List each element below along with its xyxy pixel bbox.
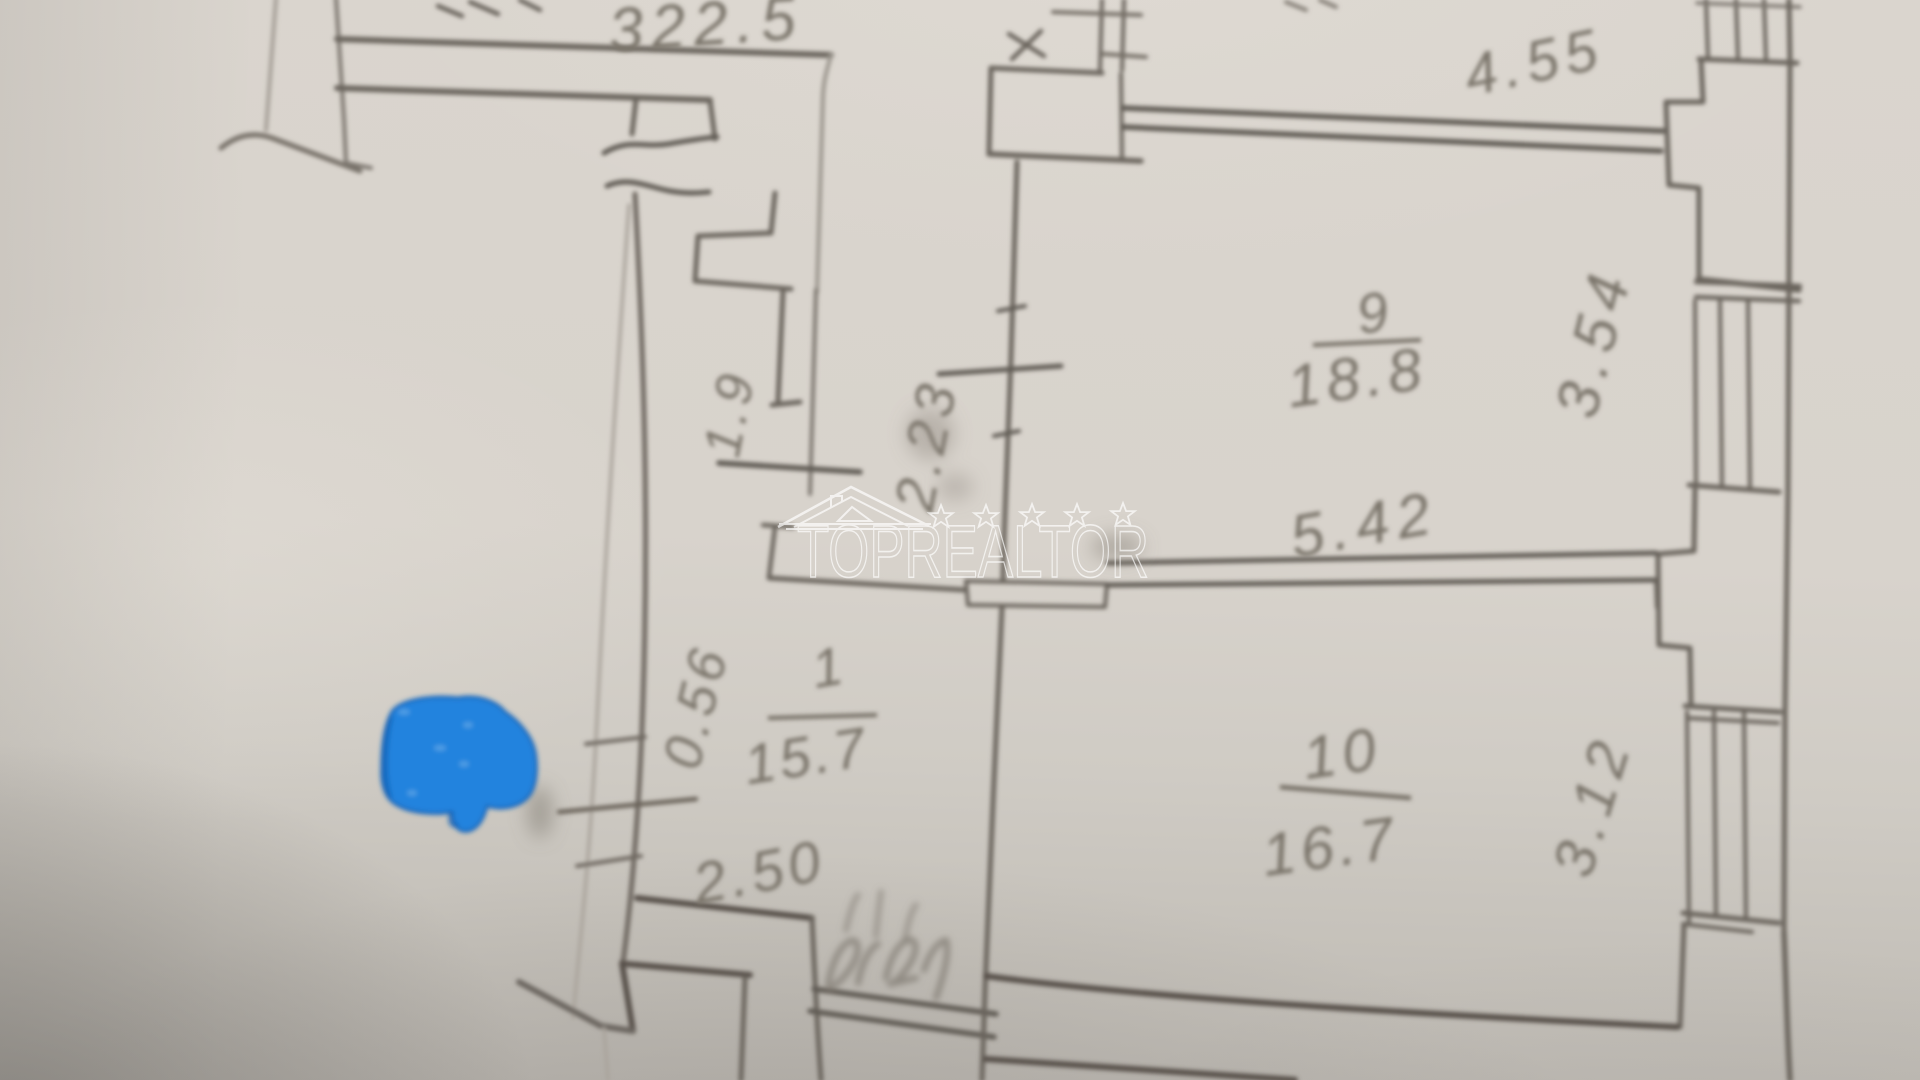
svg-text:16.7: 16.7 [1258,804,1403,889]
svg-text:18.8: 18.8 [1283,335,1432,421]
svg-text:4.55: 4.55 [1459,16,1610,109]
svg-text:TOPREALTOR: TOPREALTOR [797,510,1149,593]
svg-text:3.54: 3.54 [1543,260,1645,424]
svg-text:9: 9 [1353,279,1393,346]
svg-text:3.12: 3.12 [1540,727,1645,885]
svg-text:1: 1 [807,636,847,700]
svg-text:10: 10 [1299,715,1386,792]
svg-text:15.7: 15.7 [740,715,873,797]
svg-text:2.50: 2.50 [687,828,831,917]
svg-text:1.9: 1.9 [693,365,767,462]
svg-text:0.56: 0.56 [652,639,740,775]
